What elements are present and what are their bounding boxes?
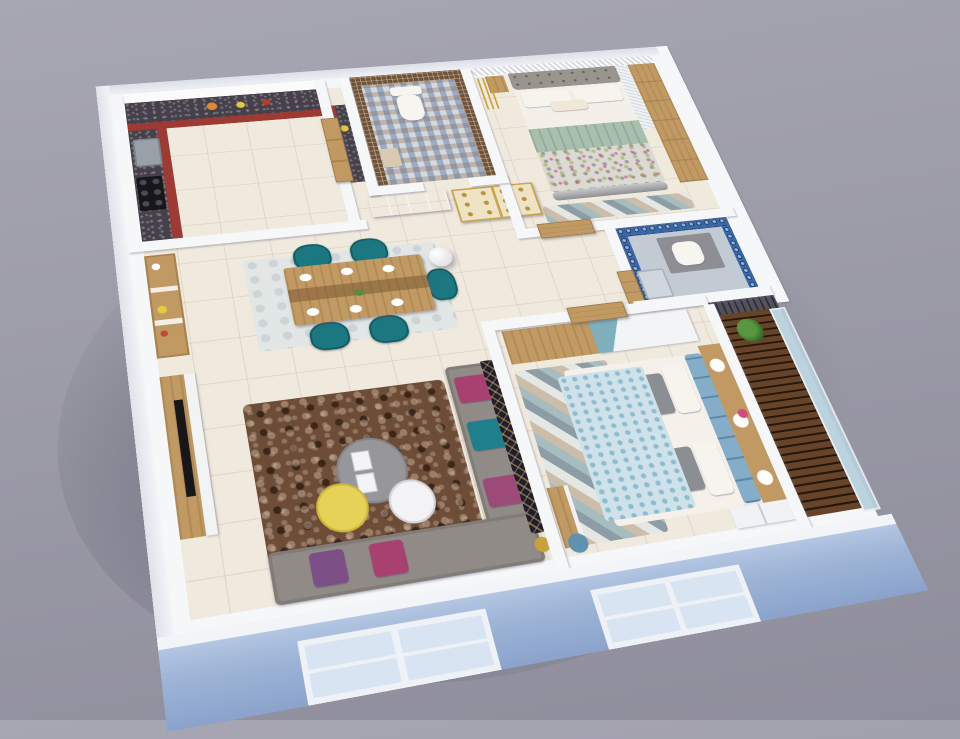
kitchen-sink bbox=[132, 138, 163, 168]
gas-hob bbox=[136, 176, 167, 212]
cushion-magenta-3 bbox=[368, 539, 410, 578]
render-canvas: { "scene": { "title": "3D isometric cuta… bbox=[0, 0, 960, 720]
cushion-purple-1 bbox=[308, 548, 350, 587]
apartment-floor-plan bbox=[110, 55, 880, 640]
tray-frame-1 bbox=[350, 450, 373, 472]
living-room-window bbox=[297, 609, 502, 706]
bedroom2-window bbox=[590, 564, 761, 649]
